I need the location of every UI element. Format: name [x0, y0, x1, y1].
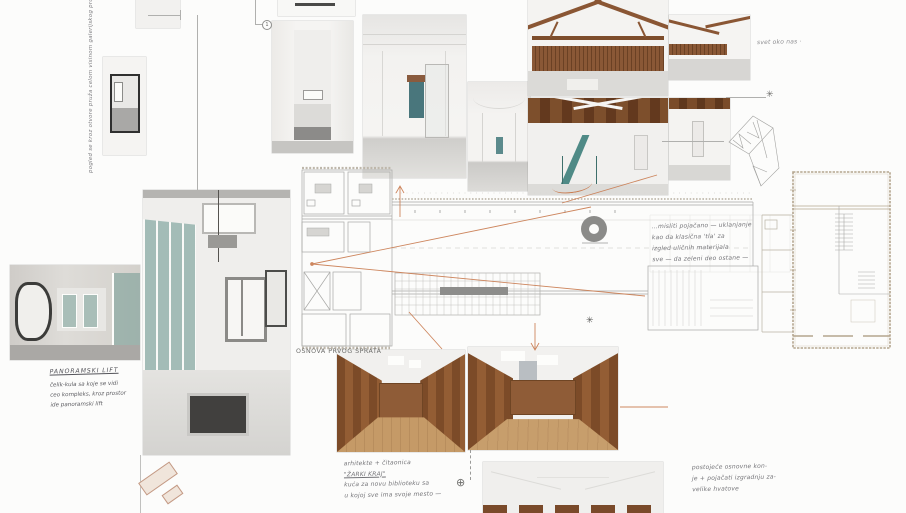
north-arrow-icon: ✳ [766, 90, 774, 100]
plan-stage-bar [440, 287, 508, 295]
presentation-board: 1 ✳ ⊕ ✳ pogled se kroz otvore pruža celo… [0, 0, 906, 513]
slatted-wood-wall [532, 46, 664, 71]
note-vertical-left: pogled se kroz otvore pruža celom visino… [88, 23, 94, 173]
rounded-window [15, 282, 52, 341]
photo-rounded-window-room [10, 265, 140, 360]
hip-line-right [585, 472, 655, 490]
note-vertical-left-text: pogled se kroz otvore pruža celom visino… [88, 0, 94, 173]
floor-plan-drawing [295, 160, 895, 422]
massing-sketch [133, 455, 193, 507]
corner-floor [669, 59, 750, 80]
callout-bracket-vertical [255, 0, 256, 24]
glass-partition [425, 64, 450, 138]
hanging-rod [218, 190, 219, 262]
photo-attic-truss-corner [669, 15, 750, 80]
note-top-right-text: svet oko nas · [757, 35, 867, 48]
inner-window [114, 82, 123, 102]
door-opening [692, 121, 704, 157]
skylight-reflection [567, 79, 598, 91]
center-window-mullion [241, 277, 243, 335]
asterisk-icon: ✳ [586, 316, 594, 326]
sink [303, 90, 323, 100]
corridor-floor [294, 127, 331, 140]
note-top-right: svet oko nas · [757, 35, 867, 48]
note-library: arhitekte + čitaonica "ŽARKI KRAJ" kuća … [344, 457, 480, 502]
back-glazing-2 [83, 294, 98, 328]
column-left [382, 51, 383, 136]
hip-line-left [491, 472, 561, 490]
note-panoramic-lift: PANORAMSKI LIFT čelik-kula sa koje se vi… [49, 364, 170, 410]
center-window [225, 277, 266, 341]
foreground-floor [272, 141, 353, 153]
leader-north [726, 97, 766, 98]
room-floor [10, 345, 140, 360]
back-glazing-1 [62, 294, 77, 328]
corner-slat-band [669, 44, 727, 56]
note-line: velike hvatove [692, 482, 812, 496]
photo-glass-gallery [143, 190, 290, 455]
ceiling-vent [208, 235, 237, 248]
leader-vertical-long [197, 15, 198, 190]
corridor-recess [294, 30, 331, 136]
photo-attic-ceiling [483, 462, 663, 513]
vault-arches [473, 86, 525, 109]
floor-opening [187, 393, 249, 436]
ridge-line [537, 477, 609, 478]
model-object [295, 3, 335, 6]
corner-rafter-2 [705, 15, 750, 29]
beam-row [483, 505, 663, 513]
photo-room-with-window [103, 57, 146, 155]
teal-door [409, 82, 423, 118]
photo-attic-truss-shelves [528, 0, 668, 96]
ceiling-edge [143, 190, 290, 198]
column-row-right [515, 113, 516, 162]
truss-sketch [723, 108, 781, 192]
photo-narrow-corridor [272, 21, 353, 153]
plan-title-label: OSNOVA PRVOG SPRATA [296, 348, 381, 355]
truss-rafter-left [528, 0, 602, 32]
note-plan-side: ...misliti pojačano — uklanjanje kao da … [652, 219, 778, 266]
photo-stair-detail-top [136, 0, 180, 28]
beam-strip [669, 98, 730, 109]
massing-block-2 [162, 485, 184, 505]
photo-model [278, 0, 355, 16]
truss-rafter-right [594, 0, 668, 32]
callout-marker: 1 [262, 20, 272, 30]
leader-to-sketch [662, 141, 724, 142]
teal-end-door [496, 137, 503, 154]
note-panoramic-title: PANORAMSKI LIFT [49, 364, 169, 377]
photo-vaulted-hall-teal-door [363, 15, 466, 178]
skylight [202, 203, 256, 234]
door-lintel [407, 75, 426, 82]
column-row-left [482, 113, 483, 162]
note-structure: postojeće osnovne kon- je + pojačati izg… [692, 460, 813, 496]
ceiling-beams [363, 25, 466, 48]
attic-floor [528, 71, 668, 96]
note-line: u kojoj sve ima svoje mesto — [344, 488, 479, 501]
leader-tick-horizontal [148, 15, 180, 16]
side-window [265, 270, 287, 327]
leader-tick-bar [180, 10, 181, 20]
glass-panel-right [112, 273, 140, 353]
